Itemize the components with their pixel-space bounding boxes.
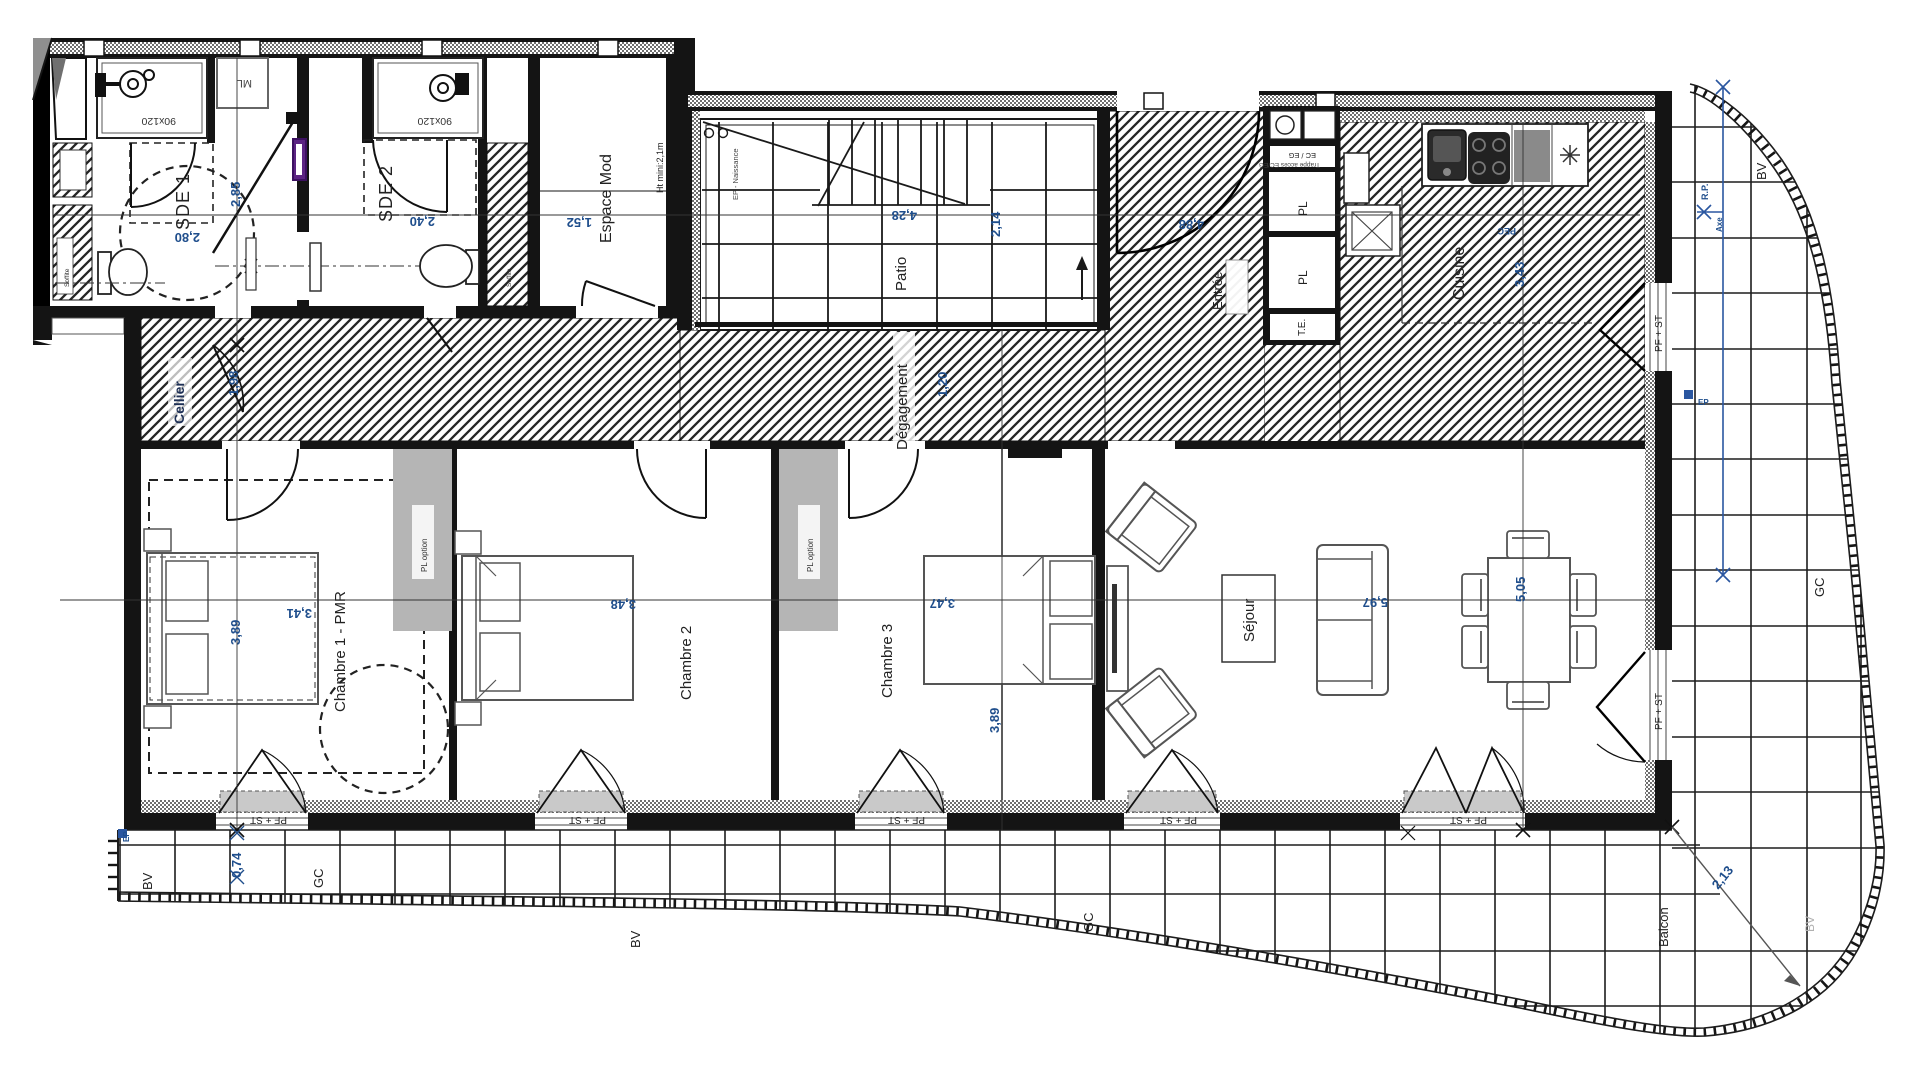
svg-text:PL: PL [1296, 270, 1310, 285]
svg-text:Axe: Axe [1715, 217, 1724, 232]
svg-text:SDE 2: SDE 2 [376, 165, 396, 222]
svg-text:Chambre 2: Chambre 2 [678, 626, 695, 700]
svg-text:PEC: PEC [1497, 226, 1516, 236]
svg-text:Cuisine: Cuisine [1451, 247, 1468, 300]
svg-text:PF + ST: PF + ST [569, 814, 606, 825]
svg-text:2,80: 2,80 [175, 230, 200, 245]
svg-text:3,48: 3,48 [611, 597, 636, 612]
svg-text:3,89: 3,89 [228, 620, 243, 645]
svg-text:EC / EG: EC / EG [1288, 151, 1316, 160]
svg-text:GC: GC [1812, 578, 1827, 598]
svg-text:5,97: 5,97 [1363, 595, 1388, 610]
svg-text:PF + ST: PF + ST [1654, 693, 1665, 730]
svg-text:PF + ST: PF + ST [1160, 814, 1197, 825]
svg-text:1,20: 1,20 [935, 372, 950, 397]
svg-text:3,89: 3,89 [987, 708, 1002, 733]
svg-text:0,74: 0,74 [229, 852, 244, 878]
svg-text:90x120: 90x120 [141, 115, 176, 127]
svg-text:R.P.: R.P. [1700, 184, 1710, 200]
svg-text:BV: BV [628, 930, 643, 948]
svg-text:T.E.: T.E. [1297, 319, 1308, 336]
svg-text:2,40: 2,40 [410, 214, 435, 229]
svg-text:Soffite: Soffite [506, 268, 513, 287]
svg-text:Trappe accès EC/EG: Trappe accès EC/EG [1259, 161, 1320, 168]
svg-text:Soffite: Soffite [64, 268, 71, 287]
svg-text:PL: PL [1296, 201, 1310, 216]
svg-text:BV: BV [1754, 162, 1769, 180]
svg-text:1,98: 1,98 [226, 371, 241, 396]
svg-text:1,52: 1,52 [567, 215, 592, 230]
svg-text:4,88: 4,88 [1179, 217, 1204, 232]
svg-text:Séjour: Séjour [1241, 599, 1258, 642]
svg-text:PF + ST: PF + ST [250, 814, 287, 825]
svg-text:Chambre 1 - PMR: Chambre 1 - PMR [332, 591, 349, 712]
svg-text:GC: GC [1081, 913, 1096, 933]
svg-text:3,41: 3,41 [287, 606, 312, 621]
svg-text:SDE 1: SDE 1 [173, 173, 193, 230]
svg-text:BV: BV [140, 872, 155, 890]
svg-text:4,28: 4,28 [892, 208, 917, 223]
svg-text:Entrée: Entrée [1210, 272, 1225, 310]
svg-text:PL option: PL option [420, 538, 429, 572]
svg-text:Cellier: Cellier [171, 381, 187, 424]
svg-text:PF + ST: PF + ST [1654, 315, 1665, 352]
svg-text:Ht mini:2,1m: Ht mini:2,1m [655, 142, 665, 193]
svg-text:EP: EP [1698, 398, 1709, 407]
svg-text:Patio: Patio [893, 257, 910, 291]
svg-text:PF + ST: PF + ST [888, 814, 925, 825]
svg-text:Balcon: Balcon [1656, 907, 1671, 947]
svg-text:Espace Mod: Espace Mod [598, 154, 615, 243]
svg-text:Dégagement: Dégagement [894, 363, 911, 450]
svg-text:PL option: PL option [806, 538, 815, 572]
svg-text:90x120: 90x120 [417, 115, 452, 127]
svg-text:5,05: 5,05 [1513, 577, 1528, 602]
svg-text:ML: ML [237, 77, 252, 89]
svg-text:Chambre 3: Chambre 3 [879, 624, 896, 698]
svg-text:3,43: 3,43 [1512, 262, 1527, 287]
svg-text:EP - Naissance: EP - Naissance [731, 148, 740, 200]
svg-text:2,85: 2,85 [228, 182, 243, 207]
svg-text:PF + ST: PF + ST [1450, 814, 1487, 825]
svg-text:GC: GC [311, 869, 326, 889]
svg-text:BV: BV [1803, 916, 1817, 932]
svg-text:2,14: 2,14 [988, 211, 1003, 237]
svg-text:EP: EP [122, 831, 131, 842]
svg-text:3,47: 3,47 [930, 596, 955, 611]
